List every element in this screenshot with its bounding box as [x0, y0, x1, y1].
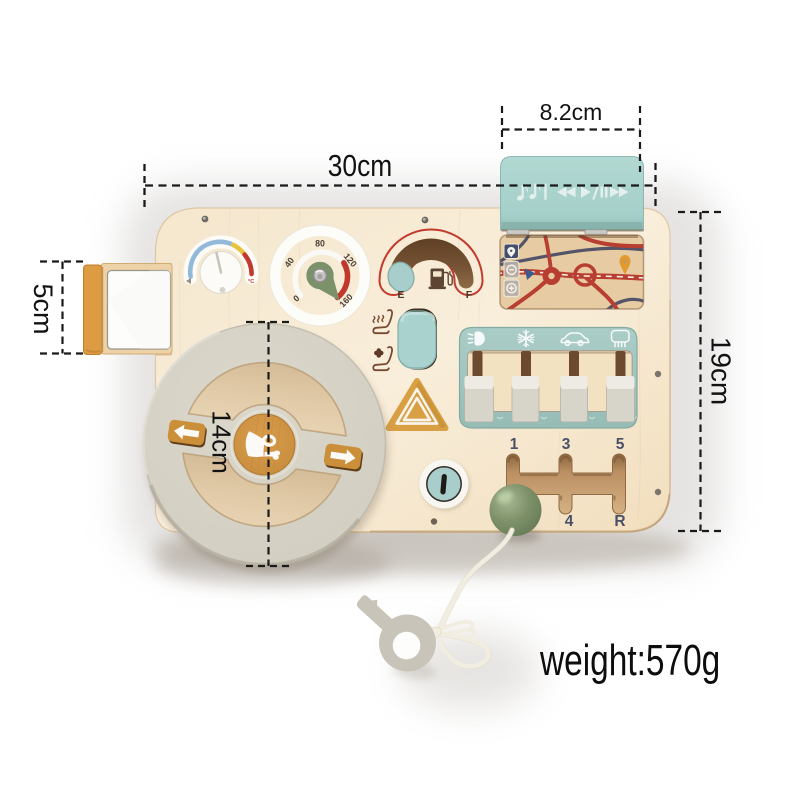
svg-text:3: 3: [562, 436, 571, 453]
svg-text:19cm: 19cm: [706, 337, 737, 405]
svg-text:°C: °C: [248, 279, 254, 285]
svg-text:30cm: 30cm: [328, 149, 392, 183]
svg-text:1: 1: [510, 436, 519, 453]
svg-text:E: E: [397, 289, 404, 301]
svg-text:80: 80: [315, 239, 325, 249]
svg-text:5cm: 5cm: [28, 283, 58, 334]
svg-text:F: F: [466, 289, 473, 301]
svg-text:14cm: 14cm: [207, 410, 237, 474]
svg-text:5: 5: [616, 436, 625, 453]
svg-text:weight:570g: weight:570g: [539, 637, 720, 685]
svg-text:4: 4: [565, 513, 574, 530]
svg-text:8.2cm: 8.2cm: [540, 99, 603, 125]
svg-text:R: R: [614, 513, 625, 530]
